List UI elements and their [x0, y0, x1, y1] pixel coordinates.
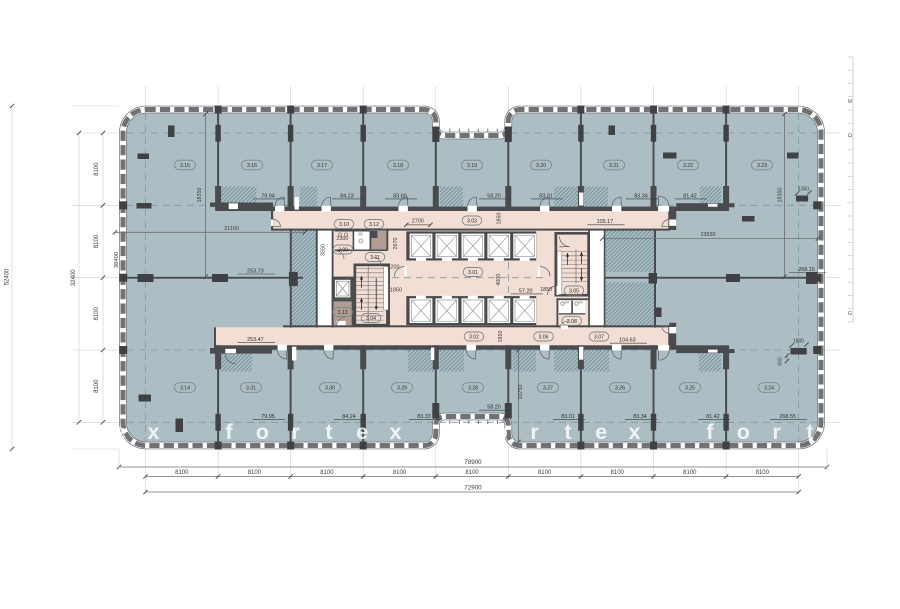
- svg-text:79.94: 79.94: [261, 193, 275, 199]
- svg-text:57.20: 57.20: [519, 288, 533, 294]
- svg-text:r: r: [530, 420, 539, 444]
- svg-text:x: x: [629, 420, 641, 444]
- svg-text:84.24: 84.24: [342, 414, 356, 420]
- svg-text:2200: 2200: [388, 265, 400, 271]
- svg-text:8100: 8100: [538, 470, 552, 476]
- svg-text:1800: 1800: [793, 339, 804, 345]
- svg-text:f: f: [706, 420, 714, 444]
- svg-text:O: O: [848, 133, 852, 139]
- svg-text:8100: 8100: [320, 470, 334, 476]
- svg-text:2670: 2670: [393, 238, 399, 250]
- svg-text:8100: 8100: [94, 379, 100, 393]
- svg-text:e: e: [114, 420, 126, 444]
- svg-text:8100: 8100: [393, 470, 407, 476]
- svg-text:83.33: 83.33: [417, 414, 431, 420]
- svg-text:3.02: 3.02: [469, 335, 479, 341]
- svg-text:2300: 2300: [336, 236, 348, 242]
- svg-text:e: e: [837, 420, 849, 444]
- svg-text:4000: 4000: [496, 274, 502, 286]
- svg-text:3.16: 3.16: [247, 163, 257, 169]
- svg-text:8100: 8100: [248, 470, 262, 476]
- svg-text:3.24: 3.24: [764, 386, 774, 392]
- svg-text:72900: 72900: [464, 485, 482, 492]
- svg-text:1850: 1850: [498, 331, 504, 343]
- svg-text:3.28: 3.28: [468, 386, 478, 392]
- svg-text:268.15: 268.15: [798, 267, 815, 273]
- svg-text:8100: 8100: [611, 470, 625, 476]
- svg-text:3.17: 3.17: [317, 163, 327, 169]
- svg-text:r: r: [291, 420, 300, 444]
- svg-text:104.63: 104.63: [619, 338, 636, 344]
- svg-text:3.08: 3.08: [567, 319, 577, 325]
- svg-text:f: f: [464, 420, 472, 444]
- svg-text:8100: 8100: [94, 306, 100, 320]
- svg-text:3.04: 3.04: [366, 316, 376, 322]
- svg-text:3.06: 3.06: [538, 335, 548, 341]
- svg-text:83.01: 83.01: [539, 193, 553, 199]
- svg-text:3.23: 3.23: [757, 163, 767, 169]
- svg-text:78900: 78900: [464, 459, 482, 466]
- svg-text:1850: 1850: [496, 213, 502, 225]
- svg-text:3.05: 3.05: [569, 289, 579, 295]
- svg-text:o: o: [737, 420, 750, 444]
- svg-text:21160: 21160: [224, 226, 239, 232]
- svg-text:e: e: [595, 420, 607, 444]
- svg-text:23930: 23930: [701, 232, 716, 238]
- svg-text:x: x: [148, 420, 160, 444]
- svg-text:3.27: 3.27: [543, 386, 553, 392]
- svg-text:8100: 8100: [756, 470, 770, 476]
- svg-text:3.31: 3.31: [246, 386, 256, 392]
- svg-text:r: r: [772, 420, 781, 444]
- svg-text:3.01: 3.01: [468, 270, 478, 276]
- svg-text:3.13: 3.13: [338, 310, 348, 316]
- svg-text:32400: 32400: [71, 269, 77, 286]
- svg-text:t: t: [325, 420, 332, 444]
- svg-text:1850: 1850: [540, 287, 552, 293]
- svg-text:3.09: 3.09: [338, 248, 348, 254]
- svg-text:3.11: 3.11: [370, 255, 380, 261]
- svg-text:3.18: 3.18: [393, 163, 403, 169]
- svg-text:3.12: 3.12: [369, 222, 379, 228]
- svg-text:83.34: 83.34: [634, 193, 648, 199]
- svg-text:3.20: 3.20: [536, 163, 546, 169]
- svg-text:1350: 1350: [798, 187, 809, 193]
- svg-text:3.29: 3.29: [397, 386, 407, 392]
- svg-text:3550: 3550: [321, 244, 327, 256]
- svg-text:3.21: 3.21: [609, 163, 619, 169]
- svg-text:81.42: 81.42: [683, 193, 697, 199]
- svg-text:o: o: [256, 420, 269, 444]
- svg-text:3.19: 3.19: [467, 163, 477, 169]
- svg-text:8100: 8100: [683, 470, 697, 476]
- svg-text:3.22: 3.22: [683, 163, 693, 169]
- svg-text:38400: 38400: [114, 252, 120, 268]
- svg-text:84.23: 84.23: [340, 193, 354, 199]
- svg-text:58.20: 58.20: [487, 193, 501, 199]
- svg-text:t: t: [83, 420, 90, 444]
- svg-text:10750: 10750: [518, 385, 524, 400]
- svg-text:3.30: 3.30: [325, 386, 335, 392]
- svg-text:8100: 8100: [465, 470, 479, 476]
- svg-text:253.73: 253.73: [247, 268, 264, 274]
- svg-text:M: M: [848, 99, 852, 105]
- svg-text:t: t: [806, 420, 813, 444]
- svg-text:600: 600: [778, 357, 784, 366]
- svg-text:3.26: 3.26: [615, 386, 625, 392]
- svg-text:253.47: 253.47: [247, 337, 264, 343]
- svg-text:x: x: [871, 420, 883, 444]
- svg-text:58.20: 58.20: [487, 405, 501, 411]
- svg-text:8100: 8100: [175, 470, 189, 476]
- svg-text:1850: 1850: [390, 287, 402, 293]
- svg-text:8100: 8100: [94, 234, 100, 248]
- svg-text:f: f: [225, 420, 233, 444]
- svg-text:e: e: [356, 420, 368, 444]
- svg-text:52400: 52400: [5, 268, 11, 285]
- svg-text:18350: 18350: [197, 188, 203, 203]
- svg-text:268.55: 268.55: [779, 414, 796, 420]
- svg-text:3.15: 3.15: [180, 163, 190, 169]
- svg-text:G: G: [848, 311, 852, 317]
- svg-text:3.07: 3.07: [594, 335, 604, 341]
- svg-text:18350: 18350: [777, 188, 783, 203]
- svg-text:x: x: [390, 420, 402, 444]
- svg-text:3.03: 3.03: [467, 219, 477, 225]
- svg-text:83.69: 83.69: [393, 193, 407, 199]
- svg-text:8100: 8100: [94, 162, 100, 176]
- svg-text:3.14: 3.14: [180, 386, 190, 392]
- svg-text:o: o: [14, 420, 27, 444]
- svg-text:3.10: 3.10: [339, 222, 349, 228]
- svg-text:t: t: [564, 420, 571, 444]
- svg-text:3.25: 3.25: [685, 386, 695, 392]
- svg-text:2700: 2700: [412, 219, 424, 225]
- svg-text:r: r: [49, 420, 58, 444]
- svg-text:105.17: 105.17: [597, 219, 614, 225]
- svg-text:o: o: [495, 420, 508, 444]
